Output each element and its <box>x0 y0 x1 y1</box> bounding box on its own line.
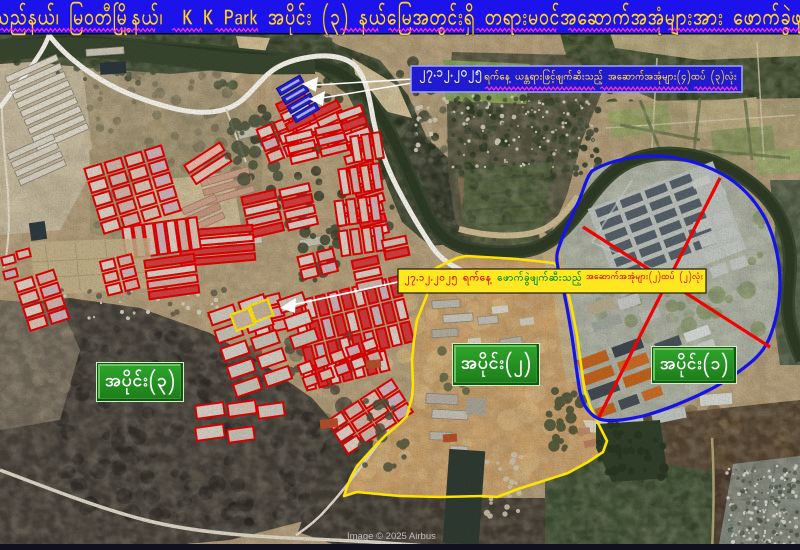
svg-text:Image © 2025 Airbus: Image © 2025 Airbus <box>347 531 436 542</box>
